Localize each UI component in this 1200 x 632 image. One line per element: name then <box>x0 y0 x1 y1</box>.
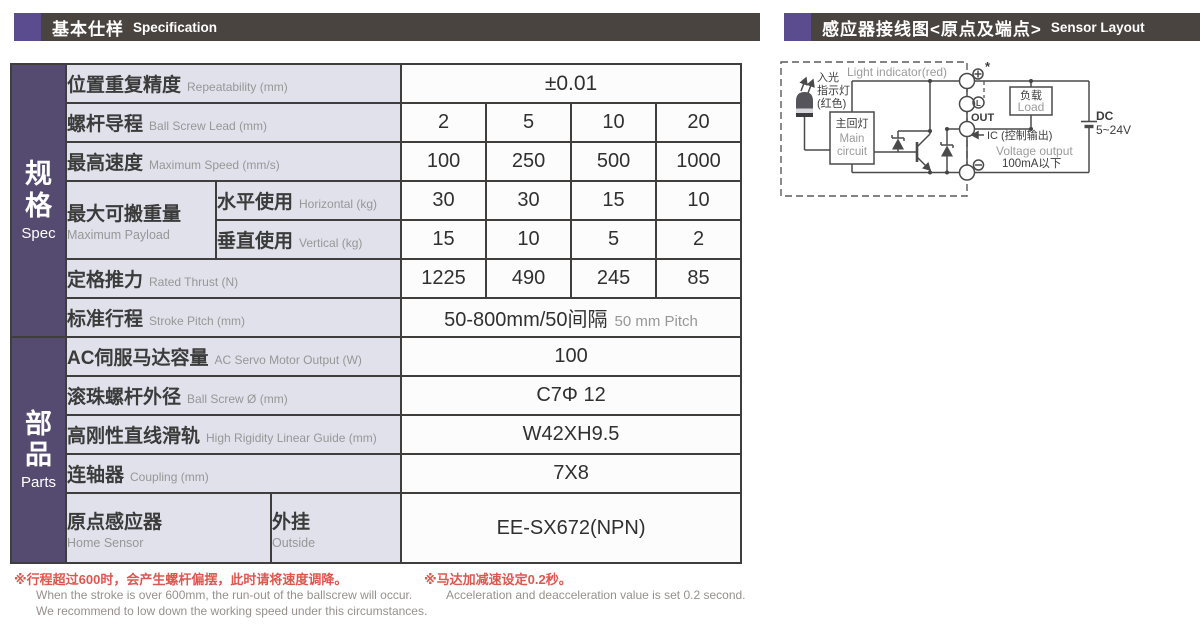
dc-label: DC <box>1096 109 1114 123</box>
footnote-stroke-zh: ※行程超过600时，会产生螺杆偏摆，此时请将速度调降。 <box>14 572 427 587</box>
sensor-layout-header: 感应器接线图<原点及端点> Sensor Layout <box>784 13 1200 41</box>
horizontal-value-2: 15 <box>571 181 656 220</box>
footnote-acceleration: ※马达加减速设定0.2秒。 Acceleration and deacceler… <box>424 572 746 603</box>
footnote-stroke: ※行程超过600时，会产生螺杆偏摆，此时请将速度调降。 When the str… <box>14 572 427 619</box>
main-circuit-zh: 主回灯 <box>836 117 869 130</box>
junction-dot <box>1029 79 1033 83</box>
speed-value-0: 100 <box>401 142 486 181</box>
repeatability-value: ±0.01 <box>401 64 741 103</box>
transistor-collector <box>917 134 930 147</box>
light-arrow-icon <box>801 78 806 91</box>
coupling-value: 7X8 <box>401 454 741 493</box>
speed-value-2: 500 <box>571 142 656 181</box>
junction-dot <box>928 171 932 175</box>
spec-header-bar: 基本仕样 Specification <box>41 13 760 41</box>
guide-label-zh: 高刚性直线滑轨 <box>67 426 200 447</box>
out-label: OUT <box>971 112 995 124</box>
accent-square-icon <box>784 13 811 41</box>
sensor-header-en: Sensor Layout <box>1051 20 1145 35</box>
guide-label: 高刚性直线滑轨High Rigidity Linear Guide (mm) <box>66 415 401 454</box>
footnote-acceleration-en: Acceleration and deacceleration value is… <box>446 588 746 603</box>
junction-dot <box>928 79 932 83</box>
motor-label-zh: AC伺服马达容量 <box>67 348 208 369</box>
sidebar-parts-en: Parts <box>12 474 65 491</box>
sidebar-spec: 规格 Spec <box>11 64 66 337</box>
led-label-line1: 入光 <box>817 70 839 84</box>
lead-label: 螺杆导程Ball Screw Lead (mm) <box>66 103 401 142</box>
star-mark: * <box>985 59 991 74</box>
sidebar-parts-zh: 部品 <box>24 409 52 471</box>
main-circuit-en1: Main <box>840 133 865 145</box>
lead-label-en: Ball Screw Lead (mm) <box>149 119 267 133</box>
repeatability-label: 位置重复精度Repeatability (mm) <box>66 64 401 103</box>
led-label-line2: 指示灯 <box>817 83 850 97</box>
thrust-label-zh: 定格推力 <box>67 270 143 291</box>
stroke-value-zh: 50-800mm/50间隔 <box>444 309 607 331</box>
home-sensor-label: 原点感应器Home Sensor <box>66 493 271 563</box>
lead-value-3: 20 <box>656 103 741 142</box>
home-sensor-label-en: Home Sensor <box>67 536 270 550</box>
stroke-label-zh: 标准行程 <box>67 309 143 330</box>
thrust-value-1: 490 <box>486 259 571 298</box>
vertical-value-2: 5 <box>571 220 656 259</box>
sensor-header-bar: 感应器接线图<原点及端点> Sensor Layout <box>811 13 1200 41</box>
payload-label-zh: 最大可搬重量 <box>67 199 215 226</box>
screw-od-value: C7Φ 12 <box>401 376 741 415</box>
speed-label-en: Maximum Speed (mm/s) <box>149 158 280 172</box>
junction-dot <box>928 129 932 133</box>
speed-label: 最高速度Maximum Speed (mm/s) <box>66 142 401 181</box>
outside-label-en: Outside <box>272 536 400 550</box>
coupling-label: 连轴器Coupling (mm) <box>66 454 401 493</box>
vertical-value-1: 10 <box>486 220 571 259</box>
thrust-label-en: Rated Thrust (N) <box>149 275 238 289</box>
spec-section-header: 基本仕样 Specification <box>14 13 760 41</box>
screw-od-label-en: Ball Screw Ø (mm) <box>187 392 288 406</box>
voltage-output-label: Voltage output <box>996 144 1073 158</box>
screw-od-label-zh: 滚珠螺杆外径 <box>67 387 181 408</box>
load-label-en: Load <box>1018 100 1045 114</box>
footnote-acceleration-zh: ※马达加减速设定0.2秒。 <box>424 572 746 587</box>
terminal-plus <box>960 74 975 89</box>
accent-square-icon <box>14 13 41 41</box>
thrust-value-3: 85 <box>656 259 741 298</box>
main-circuit-en2: circuit <box>837 146 868 158</box>
junction-dot <box>945 171 949 175</box>
thrust-value-0: 1225 <box>401 259 486 298</box>
l-symbol-text: L <box>976 99 981 108</box>
junction-dot <box>945 127 949 131</box>
outside-label-zh: 外挂 <box>272 507 400 534</box>
screw-od-label: 滚珠螺杆外径Ball Screw Ø (mm) <box>66 376 401 415</box>
motor-label: AC伺服马达容量AC Servo Motor Output (W) <box>66 337 401 376</box>
footnote-stroke-en1: When the stroke is over 600mm, the run-o… <box>36 588 427 603</box>
spec-sheet-page: 基本仕样 Specification 感应器接线图<原点及端点> Sensor … <box>0 0 1200 632</box>
speed-label-zh: 最高速度 <box>67 153 143 174</box>
speed-value-1: 250 <box>486 142 571 181</box>
dc-voltage-label: 5~24V <box>1096 123 1131 137</box>
sidebar-spec-en: Spec <box>12 225 65 242</box>
thrust-label: 定格推力Rated Thrust (N) <box>66 259 401 298</box>
horizontal-label-en: Horizontal (kg) <box>299 197 377 211</box>
led-label-line3: (红色) <box>817 96 846 110</box>
outside-label: 外挂Outside <box>271 493 401 563</box>
zener-diode-icon <box>941 146 953 157</box>
stroke-value: 50-800mm/50间隔50 mm Pitch <box>401 298 741 337</box>
lead-value-1: 5 <box>486 103 571 142</box>
guide-value: W42XH9.5 <box>401 415 741 454</box>
vertical-value-3: 2 <box>656 220 741 259</box>
lead-value-2: 10 <box>571 103 656 142</box>
vertical-label-zh: 垂直使用 <box>217 231 293 252</box>
terminal-l <box>960 97 975 112</box>
zener-diode-icon <box>892 139 904 150</box>
vertical-value-0: 15 <box>401 220 486 259</box>
footnote-stroke-en2: We recommend to low down the working spe… <box>36 604 427 619</box>
ic-label: IC (控制输出) <box>987 128 1052 142</box>
spec-header-zh: 基本仕样 <box>52 15 124 40</box>
motor-label-en: AC Servo Motor Output (W) <box>214 353 361 367</box>
vertical-label-en: Vertical (kg) <box>299 236 362 250</box>
thrust-value-2: 245 <box>571 259 656 298</box>
led-base <box>796 113 813 117</box>
guide-label-en: High Rigidity Linear Guide (mm) <box>206 431 377 445</box>
horizontal-label-zh: 水平使用 <box>217 192 293 213</box>
current-limit-label: 100mA以下 <box>1002 157 1061 170</box>
coupling-label-zh: 连轴器 <box>67 465 124 486</box>
repeatability-label-en: Repeatability (mm) <box>187 80 288 94</box>
horizontal-value-1: 30 <box>486 181 571 220</box>
lead-label-zh: 螺杆导程 <box>67 114 143 135</box>
lead-value-0: 2 <box>401 103 486 142</box>
speed-value-3: 1000 <box>656 142 741 181</box>
sidebar-spec-zh: 规格 <box>24 159 52 221</box>
spec-header-en: Specification <box>133 20 217 35</box>
stroke-label-en: Stroke Pitch (mm) <box>149 314 245 328</box>
home-sensor-label-zh: 原点感应器 <box>67 507 270 534</box>
vertical-label: 垂直使用Vertical (kg) <box>216 220 401 259</box>
sensor-header-zh: 感应器接线图<原点及端点> <box>822 15 1042 40</box>
spec-table: 规格 Spec 位置重复精度Repeatability (mm) ±0.01 螺… <box>10 63 742 564</box>
repeatability-label-zh: 位置重复精度 <box>67 75 181 96</box>
payload-label: 最大可搬重量Maximum Payload <box>66 181 216 259</box>
stroke-value-en: 50 mm Pitch <box>615 313 698 330</box>
stroke-label: 标准行程Stroke Pitch (mm) <box>66 298 401 337</box>
payload-label-en: Maximum Payload <box>67 228 215 242</box>
horizontal-value-3: 10 <box>656 181 741 220</box>
sidebar-parts: 部品 Parts <box>11 337 66 563</box>
coupling-label-en: Coupling (mm) <box>130 470 209 484</box>
led-band <box>796 109 813 114</box>
horizontal-label: 水平使用Horizontal (kg) <box>216 181 401 220</box>
light-indicator-label: Light indicator(red) <box>847 65 947 79</box>
light-arrow-icon <box>808 80 813 93</box>
transistor-emitter <box>917 157 930 170</box>
horizontal-value-0: 30 <box>401 181 486 220</box>
sensor-circuit-diagram: 入光 指示灯 (红色) Light indicator(red) 主回灯 Mai… <box>775 50 1200 210</box>
motor-value: 100 <box>401 337 741 376</box>
terminal-minus <box>960 165 975 180</box>
home-sensor-value: EE-SX672(NPN) <box>401 493 741 563</box>
